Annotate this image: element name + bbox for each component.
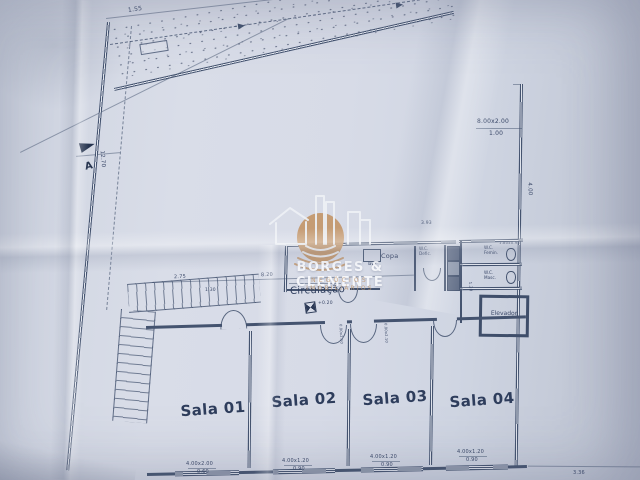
left-outer-wall: [66, 22, 110, 470]
dimension-label: 3.36: [573, 470, 585, 476]
room-label-sala02: Sala 02: [266, 388, 341, 411]
watermark: BORGES & CLEMENTE NEGÓCIOS IMOBILIÁRIOS: [250, 186, 430, 298]
window-sill: 0.90: [381, 462, 393, 468]
partition-wall: [347, 329, 351, 466]
room-label-wc-masc: W.C. Masc.: [484, 271, 496, 281]
room-label-wc-femin: W.C. Femin.: [484, 246, 498, 256]
shaft-box: [447, 246, 460, 261]
toilet-icon: [506, 271, 516, 284]
room-label-sala03: Sala 03: [357, 386, 432, 409]
window-sill: 0.90: [466, 457, 478, 463]
dimension-label: 1.00: [489, 130, 503, 137]
brand-tagline-line1: NEGÓCIOS: [250, 277, 430, 284]
toilet-icon: [506, 248, 516, 261]
door-swing-arc: [433, 320, 457, 337]
floorplan-photo: 1.55 A 12.70 8.00x2.00 1.00 4.00 lava Co…: [0, 0, 640, 480]
brand-tagline-line2: IMOBILIÁRIOS: [250, 285, 430, 292]
door-swing-arc: [350, 324, 377, 343]
room-label-sala01: Sala 01: [175, 397, 250, 420]
section-arrow-icon: [79, 139, 96, 153]
staircase-horizontal: [127, 274, 261, 313]
lot-bottom-line: [528, 466, 640, 468]
arrowhead-icon: [238, 23, 246, 30]
wc-defic-right-wall: [444, 245, 446, 291]
dimension-label: 4.00: [526, 182, 533, 195]
shaft-box: [447, 276, 460, 291]
wc-divider-wall: [460, 263, 522, 267]
door-dimension-label: 0.80x2.10: [383, 323, 388, 343]
level-marker-icon: [304, 301, 316, 313]
window-marking: [446, 464, 508, 470]
window-dimension: 4.00x2.00: [186, 461, 213, 467]
room-label-sala04: Sala 04: [444, 388, 519, 411]
wc-left-wall: [460, 265, 462, 289]
window-dimension: 4.00x1.20: [282, 458, 309, 464]
shaft-box: [447, 261, 460, 276]
dimension-label: 1.20: [468, 281, 474, 291]
level-label: +0.20: [318, 301, 333, 306]
door-swing-arc: [220, 310, 248, 330]
window-sill: 0.90: [293, 466, 305, 472]
fraction-line: [476, 128, 522, 129]
arrowhead-icon: [396, 2, 404, 9]
wc-left-wall: [460, 241, 462, 265]
dimension-label: 1.80x0.95: [499, 240, 520, 245]
window-sill: 0.60: [197, 469, 209, 475]
dimension-label: 1.55: [128, 5, 143, 14]
dimension-label: 8.00x2.00: [477, 118, 509, 125]
wall-tick: [513, 84, 521, 85]
window-dimension: 4.00x1.20: [370, 454, 397, 460]
window-dimension: 4.00x1.20: [457, 449, 484, 455]
